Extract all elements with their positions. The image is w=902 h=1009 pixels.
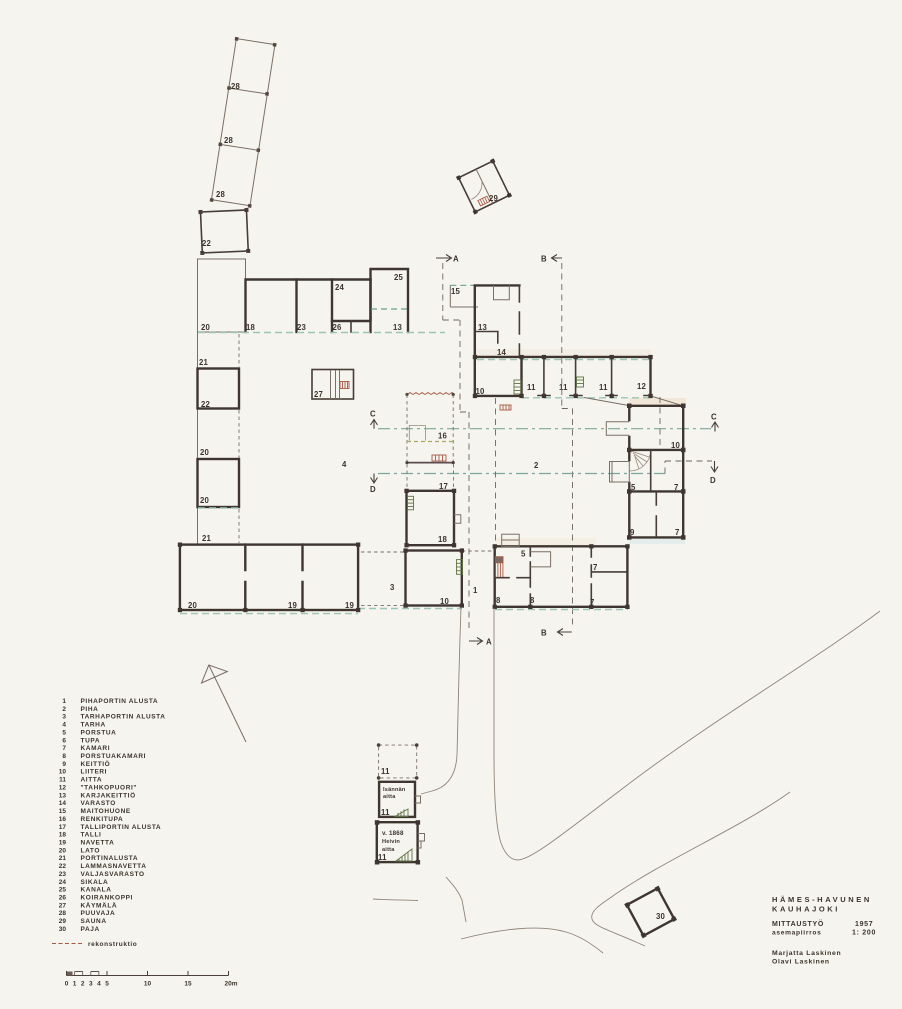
svg-text:25: 25 (394, 273, 404, 282)
svg-text:B: B (541, 255, 547, 264)
svg-text:9: 9 (62, 761, 66, 768)
svg-text:11: 11 (599, 383, 608, 392)
svg-text:MAITOHUONE: MAITOHUONE (81, 808, 131, 815)
svg-text:aitta: aitta (383, 794, 396, 800)
svg-text:28: 28 (224, 136, 234, 145)
svg-text:Isännän: Isännän (383, 787, 406, 793)
svg-text:12: 12 (637, 382, 647, 391)
svg-text:1: 1 (62, 698, 66, 705)
svg-text:29: 29 (489, 194, 499, 203)
svg-text:20: 20 (200, 448, 210, 457)
svg-text:11: 11 (381, 767, 390, 776)
svg-text:PIHA: PIHA (81, 706, 99, 713)
svg-text:11: 11 (381, 808, 390, 817)
svg-text:28: 28 (216, 190, 226, 199)
svg-text:D: D (370, 485, 376, 494)
svg-text:KAUHAJOKI: KAUHAJOKI (772, 905, 840, 914)
svg-text:7: 7 (62, 745, 66, 752)
svg-text:0: 0 (65, 981, 69, 988)
svg-text:KEITTIÖ: KEITTIÖ (81, 759, 111, 768)
svg-text:RENKITUPA: RENKITUPA (81, 816, 124, 823)
svg-text:TARHAPORTIN ALUSTA: TARHAPORTIN ALUSTA (81, 714, 166, 721)
svg-text:8: 8 (530, 596, 535, 605)
svg-text:30: 30 (59, 926, 67, 933)
svg-text:PIHAPORTIN ALUSTA: PIHAPORTIN ALUSTA (81, 698, 159, 705)
svg-text:VALJASVARASTO: VALJASVARASTO (81, 871, 145, 878)
svg-text:A: A (486, 638, 492, 647)
svg-text:v. 1868: v. 1868 (382, 830, 404, 837)
svg-text:asemapiirros: asemapiirros (772, 930, 821, 937)
svg-text:17: 17 (439, 482, 448, 491)
svg-text:KAMARI: KAMARI (81, 745, 111, 752)
svg-text:21: 21 (202, 534, 212, 543)
svg-text:22: 22 (201, 400, 211, 409)
svg-text:15: 15 (59, 808, 67, 815)
svg-text:NAVETTA: NAVETTA (81, 840, 115, 847)
svg-text:14: 14 (497, 348, 507, 357)
svg-text:13: 13 (393, 323, 403, 332)
svg-text:D: D (710, 476, 716, 485)
svg-text:PORSTUAKAMARI: PORSTUAKAMARI (81, 753, 147, 760)
svg-text:29: 29 (59, 918, 67, 925)
svg-text:21: 21 (199, 358, 209, 367)
svg-text:PUUVAJA: PUUVAJA (81, 910, 116, 917)
svg-text:rekonstruktio: rekonstruktio (88, 941, 137, 948)
svg-text:19: 19 (345, 601, 355, 610)
svg-text:KÄYMÄLÄ: KÄYMÄLÄ (81, 901, 118, 909)
svg-text:23: 23 (297, 323, 307, 332)
svg-text:19: 19 (59, 840, 67, 847)
svg-text:3: 3 (390, 583, 395, 592)
svg-text:22: 22 (202, 239, 212, 248)
svg-text:SIKALA: SIKALA (81, 879, 109, 886)
svg-text:PORTINALUSTA: PORTINALUSTA (81, 855, 139, 862)
svg-text:VARASTO: VARASTO (81, 800, 116, 807)
svg-text:PAJA: PAJA (81, 926, 100, 933)
svg-text:22: 22 (59, 863, 67, 870)
svg-text:26: 26 (59, 895, 67, 902)
svg-text:SAUNA: SAUNA (81, 918, 107, 925)
svg-text:10: 10 (59, 769, 67, 776)
svg-text:25: 25 (59, 887, 67, 894)
svg-text:7: 7 (675, 528, 680, 537)
svg-text:5: 5 (105, 981, 109, 988)
svg-text:PORSTUA: PORSTUA (81, 729, 117, 736)
svg-text:24: 24 (59, 879, 67, 886)
svg-text:10: 10 (671, 441, 681, 450)
svg-text:2: 2 (534, 461, 539, 470)
svg-text:LATO: LATO (81, 847, 101, 854)
svg-text:A: A (453, 255, 459, 264)
svg-text:LIITERI: LIITERI (81, 769, 108, 776)
svg-text:AITTA: AITTA (81, 777, 103, 784)
svg-text:KOIRANKOPPI: KOIRANKOPPI (81, 895, 133, 902)
svg-text:13: 13 (478, 323, 488, 332)
svg-text:13: 13 (59, 792, 67, 799)
svg-text:15: 15 (451, 287, 461, 296)
svg-text:20: 20 (59, 847, 67, 854)
svg-text:HÄMES-HAVUNEN: HÄMES-HAVUNEN (772, 895, 872, 904)
svg-text:18: 18 (59, 832, 67, 839)
svg-text:Heivin: Heivin (382, 839, 400, 845)
svg-text:14: 14 (59, 800, 67, 807)
svg-text:30: 30 (656, 912, 666, 921)
svg-text:"TAHKOPUORI": "TAHKOPUORI" (81, 785, 138, 792)
svg-text:8: 8 (496, 596, 501, 605)
svg-text:27: 27 (314, 390, 323, 399)
svg-text:20m: 20m (224, 981, 237, 988)
svg-text:18: 18 (246, 323, 256, 332)
svg-text:11: 11 (59, 777, 66, 784)
svg-text:4: 4 (62, 722, 66, 729)
svg-text:C: C (711, 413, 717, 422)
svg-text:16: 16 (438, 432, 448, 441)
svg-text:20: 20 (200, 496, 210, 505)
svg-text:Olavi Laskinen: Olavi Laskinen (772, 959, 830, 966)
svg-text:TUPA: TUPA (81, 737, 101, 744)
svg-text:20: 20 (188, 601, 198, 610)
svg-text:TALLIPORTIN ALUSTA: TALLIPORTIN ALUSTA (81, 824, 162, 831)
svg-text:6: 6 (62, 737, 66, 744)
svg-text:8: 8 (62, 753, 66, 760)
svg-text:15: 15 (184, 981, 192, 988)
svg-text:4: 4 (97, 981, 101, 988)
svg-text:4: 4 (342, 460, 347, 469)
svg-text:19: 19 (288, 601, 298, 610)
svg-text:11: 11 (378, 853, 387, 862)
svg-text:24: 24 (335, 283, 345, 292)
svg-text:18: 18 (438, 535, 448, 544)
svg-text:1: 1 (73, 981, 77, 988)
svg-text:LAMMASNAVETTA: LAMMASNAVETTA (81, 863, 147, 870)
svg-text:B: B (541, 629, 547, 638)
svg-text:17: 17 (59, 824, 67, 831)
svg-text:5: 5 (521, 550, 526, 559)
svg-text:12: 12 (59, 785, 67, 792)
svg-text:2: 2 (62, 706, 66, 713)
svg-text:C: C (370, 410, 376, 419)
svg-text:5: 5 (62, 729, 66, 736)
svg-text:KANALA: KANALA (81, 887, 112, 894)
svg-text:10: 10 (144, 981, 152, 988)
svg-text:11: 11 (559, 383, 568, 392)
svg-text:KARJAKEITTIÖ: KARJAKEITTIÖ (81, 790, 136, 799)
svg-text:23: 23 (59, 871, 67, 878)
svg-text:7: 7 (593, 563, 598, 572)
svg-text:20: 20 (201, 323, 211, 332)
svg-text:TARHA: TARHA (81, 722, 106, 729)
svg-text:MITTAUSTYÖ: MITTAUSTYÖ (772, 919, 824, 928)
svg-text:11: 11 (527, 383, 536, 392)
svg-text:27: 27 (59, 902, 67, 909)
svg-text:28: 28 (231, 82, 241, 91)
svg-text:TALLI: TALLI (81, 832, 102, 839)
svg-text:16: 16 (59, 816, 67, 823)
svg-text:2: 2 (81, 981, 85, 988)
svg-text:Marjatta Laskinen: Marjatta Laskinen (772, 950, 841, 957)
svg-text:21: 21 (59, 855, 67, 862)
svg-text:10: 10 (440, 597, 450, 606)
svg-text:3: 3 (89, 981, 93, 988)
svg-text:3: 3 (62, 714, 66, 721)
svg-text:1957: 1957 (855, 921, 873, 928)
svg-text:1: 1 (473, 586, 478, 595)
svg-text:26: 26 (333, 323, 343, 332)
svg-text:28: 28 (59, 910, 67, 917)
svg-text:1: 200: 1: 200 (852, 930, 876, 937)
